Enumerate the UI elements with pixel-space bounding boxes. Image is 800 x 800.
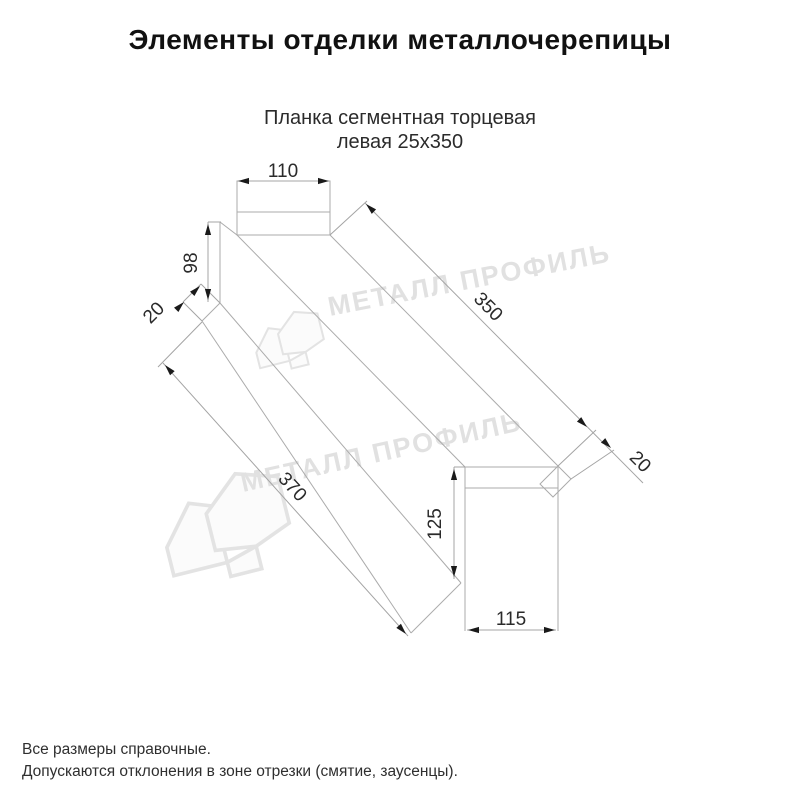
dim-near-end-fold: 20 [139, 298, 169, 328]
dim-far-end-width: 115 [496, 609, 526, 630]
technical-drawing: МЕТАЛЛ ПРОФИЛЬ МЕТАЛЛ ПРОФИЛЬ [0, 0, 800, 800]
watermark-text-upper: МЕТАЛЛ ПРОФИЛЬ [325, 238, 613, 322]
dim-far-end-fold: 20 [625, 447, 655, 477]
watermark-layer: МЕТАЛЛ ПРОФИЛЬ МЕТАЛЛ ПРОФИЛЬ [154, 238, 614, 590]
dim-far-end-height: 125 [425, 508, 446, 540]
footer-notes: Все размеры справочные. Допускаются откл… [22, 739, 458, 783]
dim-near-end-height: 98 [181, 252, 202, 273]
footer-note-1: Все размеры справочные. [22, 739, 458, 761]
footer-note-2: Допускаются отклонения в зоне отрезки (с… [22, 761, 458, 783]
dim-top-edge-length: 350 [469, 288, 506, 325]
dim-top-flange-width: 110 [268, 161, 298, 182]
technical-drawing-page: Элементы отделки металлочерепицы Планка … [0, 0, 800, 800]
